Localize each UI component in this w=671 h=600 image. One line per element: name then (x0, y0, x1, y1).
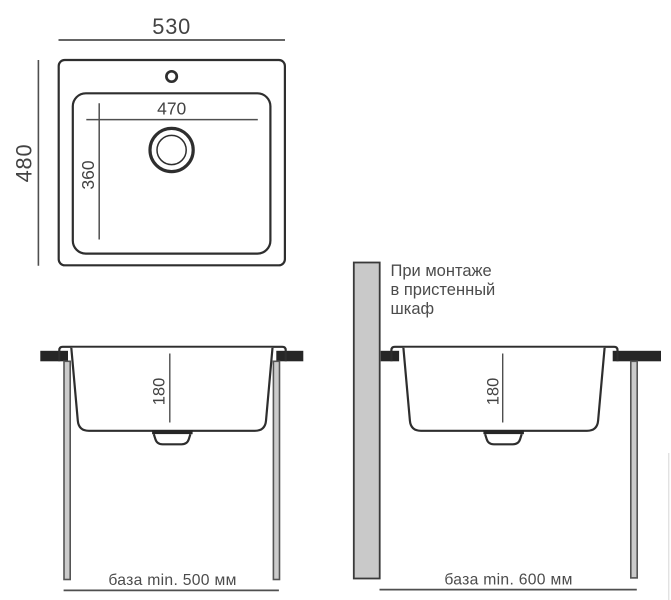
svg-text:530: 530 (152, 14, 191, 39)
svg-text:база min. 600 мм: база min. 600 мм (444, 572, 572, 589)
svg-text:При монтаже: При монтаже (391, 262, 492, 280)
svg-text:180: 180 (485, 378, 503, 406)
svg-text:180: 180 (151, 378, 169, 406)
svg-text:470: 470 (157, 98, 186, 118)
svg-text:шкаф: шкаф (391, 300, 435, 318)
svg-text:в пристенный: в пристенный (391, 281, 496, 299)
svg-text:база min. 500 мм: база min. 500 мм (108, 572, 236, 589)
svg-text:480: 480 (11, 144, 36, 183)
svg-text:360: 360 (78, 160, 98, 189)
